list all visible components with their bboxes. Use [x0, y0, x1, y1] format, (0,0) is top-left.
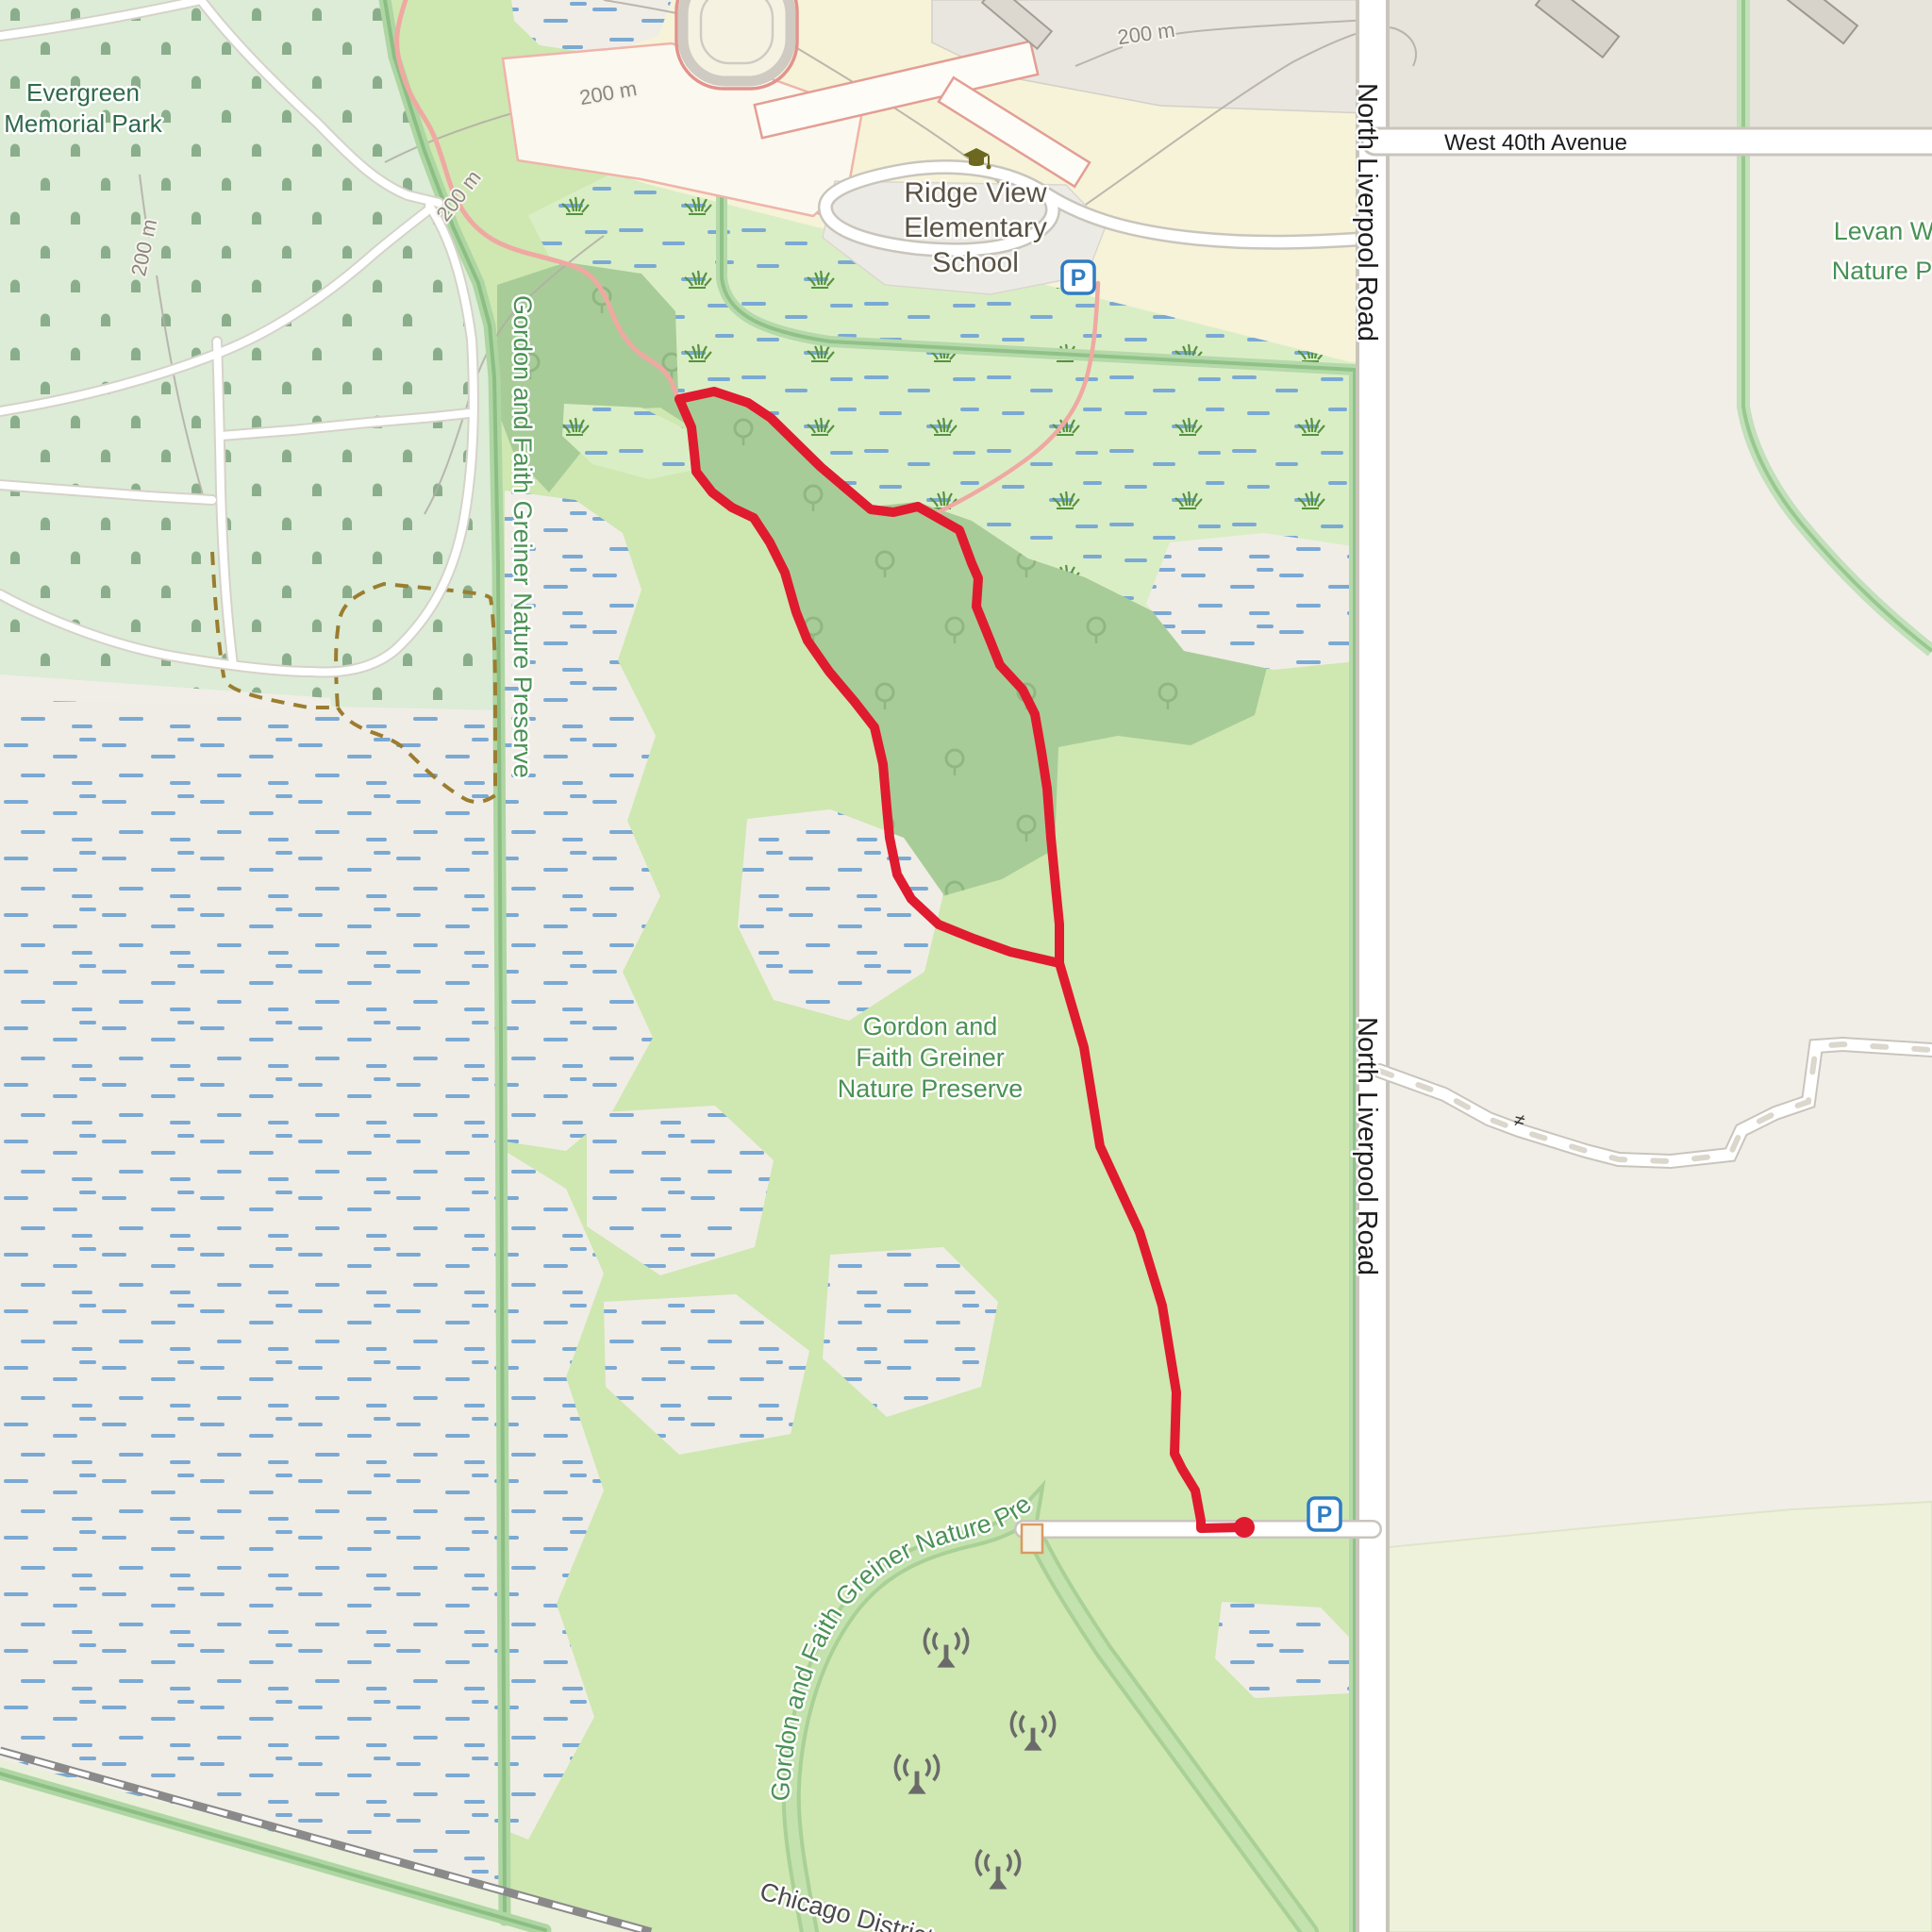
west-40th-label: West 40th Avenue [1444, 130, 1627, 156]
wetland-west [0, 700, 503, 1915]
school-label-line1: Ridge View [904, 177, 1047, 208]
north-liverpool-label-top: North Liverpool Road [1352, 83, 1382, 341]
levan-label-line1: Levan W [1834, 217, 1932, 245]
svg-text:P: P [1071, 265, 1087, 291]
preserve-boundary-label: Gordon and Faith Greiner Nature Preserve [508, 295, 537, 778]
preserve-label-line1: Gordon and [863, 1012, 998, 1041]
cemetery-label-line2: Memorial Park [4, 109, 163, 138]
map-canvas[interactable]: P P [0, 0, 1932, 1932]
north-liverpool-label-mid: North Liverpool Road [1352, 1017, 1382, 1275]
levan-label-line2: Nature P [1832, 257, 1932, 285]
preserve-label-line3: Nature Preserve [838, 1074, 1024, 1103]
field-southeast [1389, 1502, 1932, 1932]
cemetery-label-line1: Evergreen [26, 78, 140, 107]
school-label-line2: Elementary [904, 212, 1047, 243]
route-end-dot [1234, 1517, 1255, 1538]
osm-map[interactable]: P P [0, 0, 1932, 1932]
svg-text:P: P [1317, 1502, 1333, 1528]
preserve-label-line2: Faith Greiner [856, 1043, 1005, 1072]
parking-icon: P [1062, 261, 1094, 293]
parking-icon: P [1308, 1498, 1341, 1530]
school-label-line3: School [932, 247, 1019, 278]
shed-building [1022, 1524, 1042, 1553]
